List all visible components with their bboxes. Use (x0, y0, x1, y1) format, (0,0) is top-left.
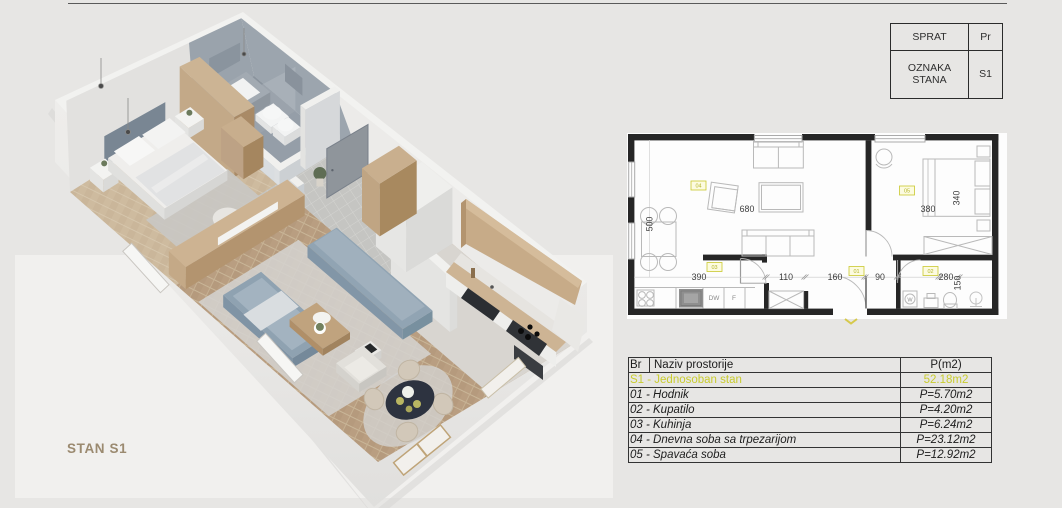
svg-text:390: 390 (692, 272, 707, 282)
svg-text:280: 280 (939, 272, 954, 282)
svg-text:04: 04 (695, 184, 701, 190)
svg-text:02: 02 (927, 269, 933, 275)
svg-text:110: 110 (779, 272, 793, 282)
svg-text:500: 500 (645, 217, 655, 232)
svg-text:90: 90 (875, 272, 885, 282)
svg-text:05: 05 (904, 189, 910, 195)
svg-text:03: 03 (711, 265, 717, 271)
svg-text:680: 680 (740, 204, 755, 214)
svg-text:340: 340 (952, 191, 962, 206)
svg-text:F: F (732, 295, 736, 302)
svg-text:01: 01 (853, 269, 859, 275)
svg-text:DW: DW (709, 295, 721, 302)
svg-text:W: W (907, 298, 913, 304)
svg-text:160: 160 (828, 272, 843, 282)
svg-text:150: 150 (953, 276, 963, 291)
svg-text:380: 380 (921, 204, 936, 214)
